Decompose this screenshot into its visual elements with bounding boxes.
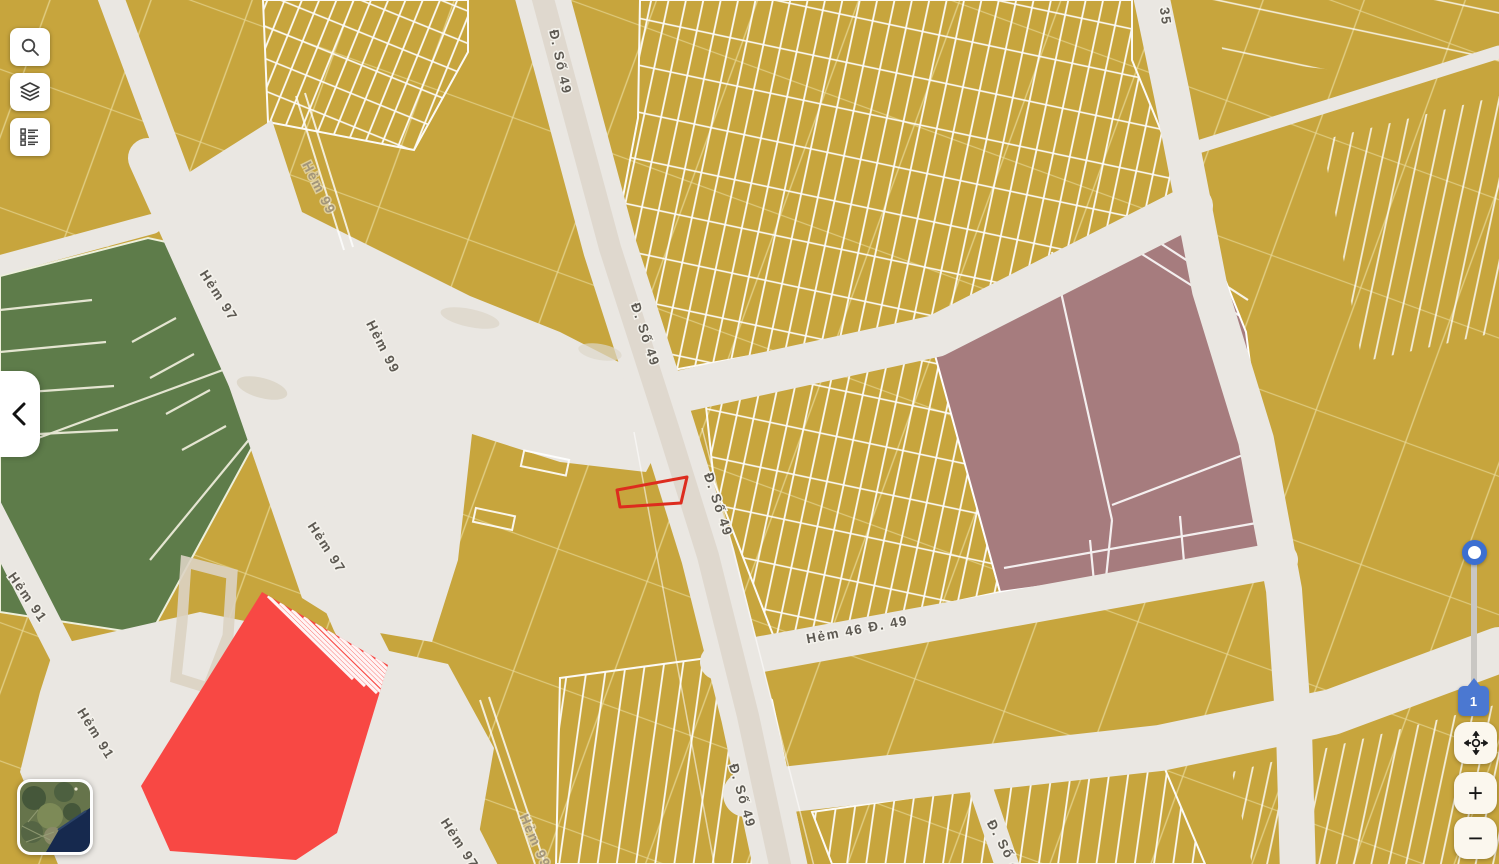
satellite-preview (20, 782, 90, 852)
legend-list-icon (19, 126, 41, 148)
search-icon (19, 36, 41, 58)
layers-button[interactable] (10, 73, 50, 111)
layers-icon (18, 80, 42, 104)
map-viewer: Đ. Số 49 Đ. Số 49 Đ. Số 49 Đ. Số 49 Đ. S… (0, 0, 1499, 864)
pan-crosshair-icon (1464, 731, 1488, 755)
chevron-left-icon (10, 401, 30, 427)
panel-collapse-tab[interactable] (0, 371, 40, 457)
zoom-in-button[interactable]: + (1454, 772, 1497, 814)
search-button[interactable] (10, 28, 50, 66)
street-label: 35 (1157, 6, 1174, 26)
minimap-satellite-toggle[interactable] (17, 779, 93, 855)
timeline-slider-handle[interactable] (1462, 540, 1487, 565)
timeline-slider-track[interactable] (1471, 550, 1477, 690)
legend-list-button[interactable] (10, 118, 50, 156)
marker-count-badge[interactable]: 1 (1458, 686, 1489, 716)
zoom-out-button[interactable]: − (1454, 817, 1497, 859)
map-canvas[interactable]: Đ. Số 49 Đ. Số 49 Đ. Số 49 Đ. Số 49 Đ. S… (0, 0, 1499, 864)
pan-button[interactable] (1454, 722, 1497, 764)
